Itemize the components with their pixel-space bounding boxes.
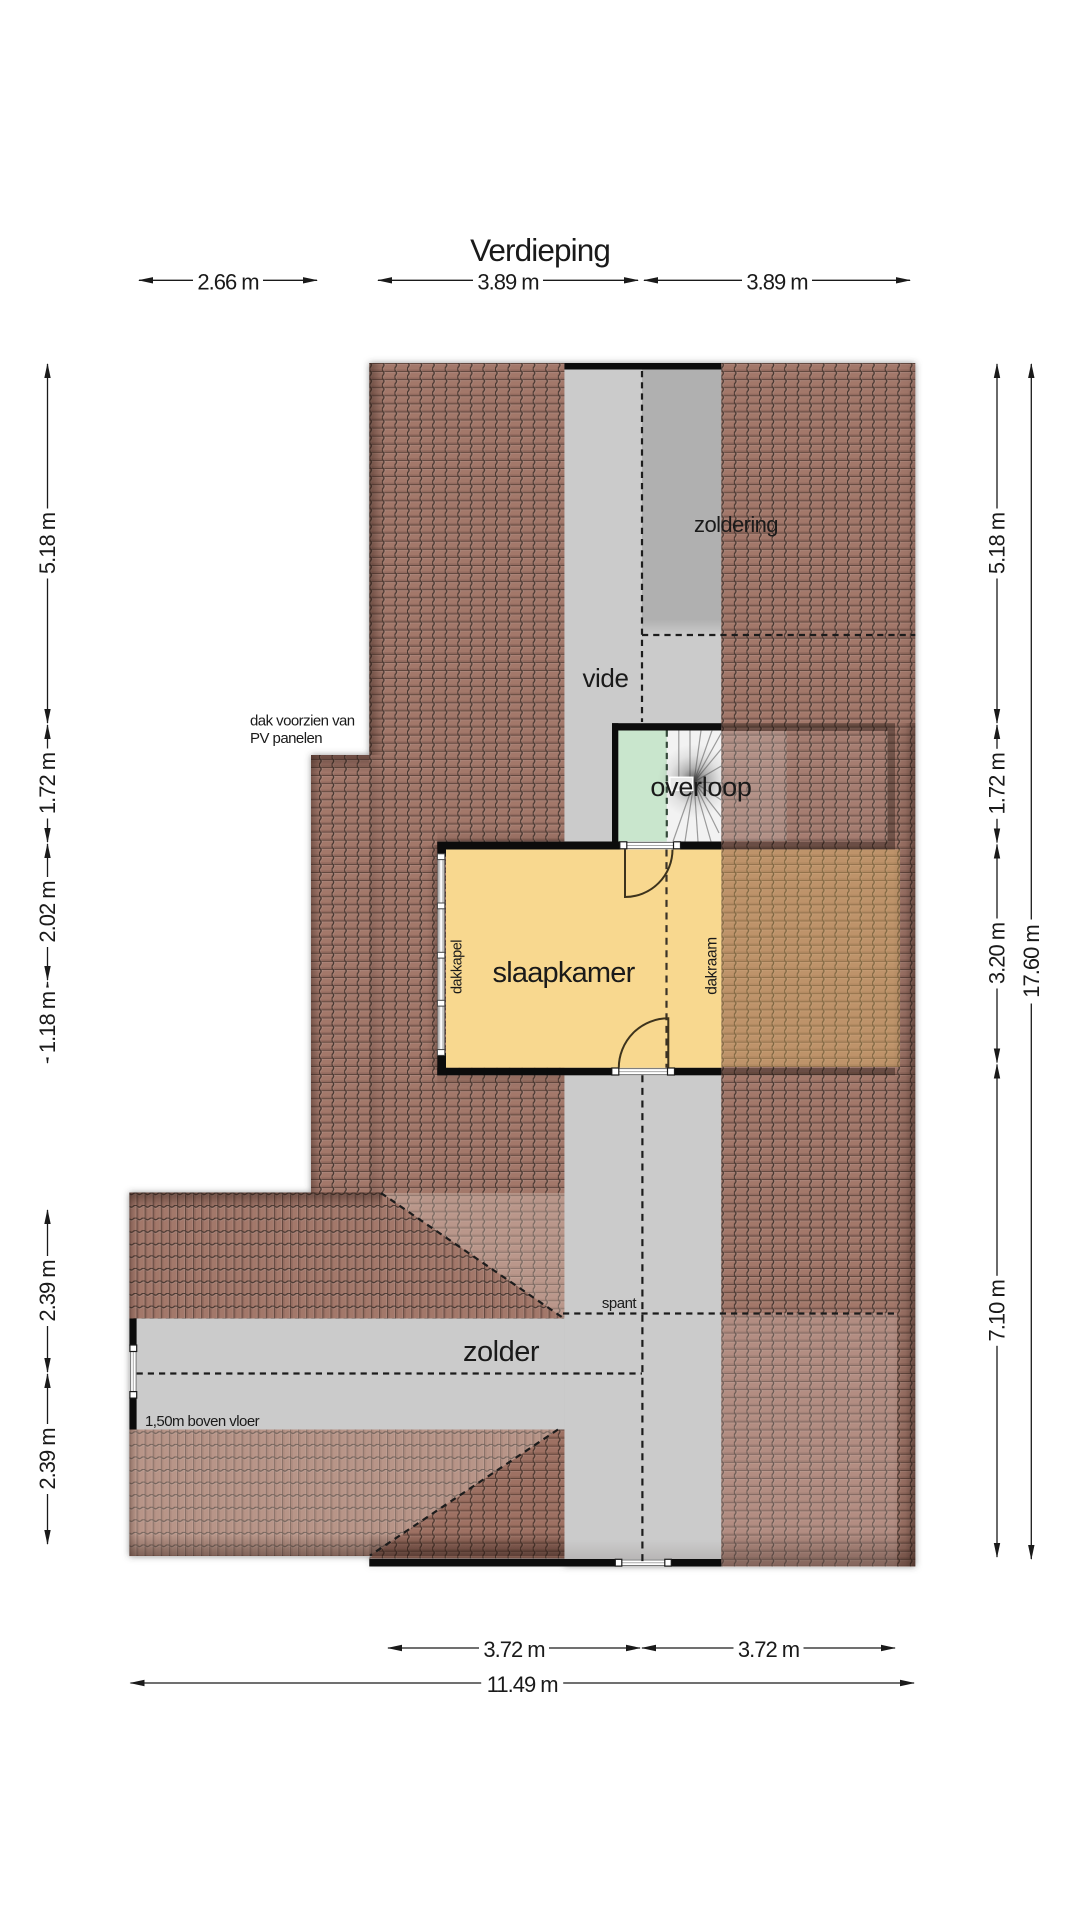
svg-text:3.72 m: 3.72 m — [738, 1637, 799, 1662]
svg-text:zolder: zolder — [463, 1336, 540, 1368]
svg-text:1,50m boven vloer: 1,50m boven vloer — [145, 1413, 260, 1430]
svg-text:spant: spant — [602, 1295, 638, 1312]
svg-text:11.49 m: 11.49 m — [487, 1672, 558, 1697]
svg-text:1.72 m: 1.72 m — [35, 753, 60, 814]
svg-text:1.18 m: 1.18 m — [35, 992, 60, 1053]
svg-text:dakraam: dakraam — [704, 937, 721, 995]
svg-text:7.10 m: 7.10 m — [985, 1280, 1010, 1341]
svg-text:2.02 m: 2.02 m — [35, 881, 60, 942]
svg-text:3.20 m: 3.20 m — [985, 923, 1010, 984]
svg-text:zoldering: zoldering — [694, 512, 778, 537]
svg-text:2.66 m: 2.66 m — [197, 269, 258, 294]
svg-text:vide: vide — [582, 663, 628, 693]
svg-text:dak voorzien van: dak voorzien van — [250, 713, 355, 730]
svg-text:Verdieping: Verdieping — [470, 232, 610, 268]
svg-text:slaapkamer: slaapkamer — [493, 957, 636, 989]
svg-text:5.18 m: 5.18 m — [985, 513, 1010, 574]
svg-text:2.39 m: 2.39 m — [35, 1428, 60, 1489]
svg-text:3.89 m: 3.89 m — [746, 269, 807, 294]
svg-text:1.72 m: 1.72 m — [985, 753, 1010, 814]
svg-text:dakkapel: dakkapel — [450, 940, 466, 994]
svg-text:3.72 m: 3.72 m — [483, 1637, 544, 1662]
svg-text:3.89 m: 3.89 m — [477, 269, 538, 294]
svg-text:overloop: overloop — [650, 772, 751, 802]
svg-text:PV panelen: PV panelen — [250, 730, 322, 747]
svg-text:2.39 m: 2.39 m — [35, 1260, 60, 1321]
svg-text:17.60 m: 17.60 m — [1019, 925, 1044, 998]
svg-text:5.18 m: 5.18 m — [35, 513, 60, 574]
